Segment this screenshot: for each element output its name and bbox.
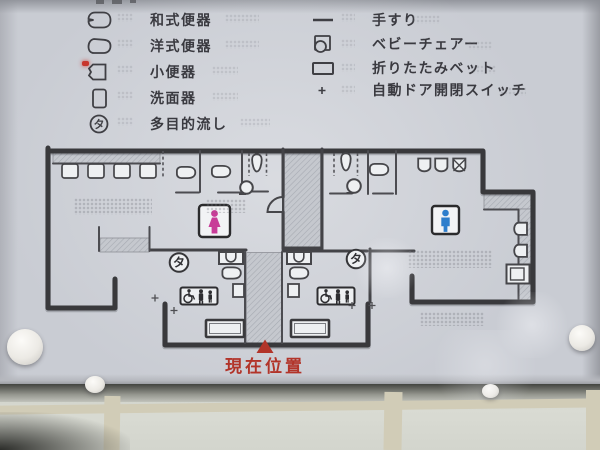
washbasin xyxy=(140,164,156,178)
tile-grout-vertical xyxy=(383,392,402,450)
womens-bench-hatch xyxy=(100,238,149,252)
urinal-inner xyxy=(511,268,525,280)
accessible-washbasin xyxy=(287,252,311,264)
urinal xyxy=(514,223,527,235)
western-toilet xyxy=(370,164,388,175)
baby-chair xyxy=(347,179,361,193)
japanese-toilet xyxy=(341,153,351,170)
womens-pictogram xyxy=(199,205,230,237)
door-swing-arc xyxy=(268,197,284,212)
washbasin xyxy=(62,164,78,178)
wall-fixture xyxy=(288,284,299,297)
womens-washbasins xyxy=(62,164,156,178)
urinal xyxy=(514,245,527,257)
japanese-toilet xyxy=(252,154,262,171)
accessible-toilet-sign xyxy=(181,288,218,305)
multi-purpose-sink-label: タ xyxy=(350,252,362,266)
restroom-map-sign-photo: 和式便器 洋式便器 小便器 洗面器 タ 多目的流し xyxy=(0,0,600,450)
washbasin xyxy=(88,164,104,178)
urinal xyxy=(418,159,430,172)
accessible-washbasin xyxy=(219,252,243,264)
urinal xyxy=(435,159,447,172)
western-toilet xyxy=(177,167,195,178)
western-toilet xyxy=(212,166,230,177)
screw-cap xyxy=(7,329,43,365)
auto-door-switch xyxy=(171,307,178,314)
auto-door-switch xyxy=(152,295,159,302)
mens-pictogram xyxy=(432,206,459,234)
western-toilet xyxy=(222,267,240,278)
washbasin xyxy=(114,164,130,178)
tile-shadow-corner xyxy=(0,412,130,450)
folding-bed xyxy=(291,320,329,337)
screw-cap xyxy=(85,376,105,393)
wall-fixture xyxy=(233,284,244,297)
entrance-corridor-hatch xyxy=(247,253,282,344)
western-toilet xyxy=(290,267,308,278)
folding-bed xyxy=(206,320,244,337)
screw-cap xyxy=(569,325,595,351)
screw-cap xyxy=(482,384,499,398)
baby-chair xyxy=(240,181,253,194)
tile-grout-vertical xyxy=(586,390,600,450)
current-location-label: 現在位置 xyxy=(225,356,305,376)
entrance-vestibule-hatch xyxy=(285,151,321,249)
multi-purpose-sink-label: タ xyxy=(173,256,185,270)
accessible-toilet-sign xyxy=(318,288,355,305)
